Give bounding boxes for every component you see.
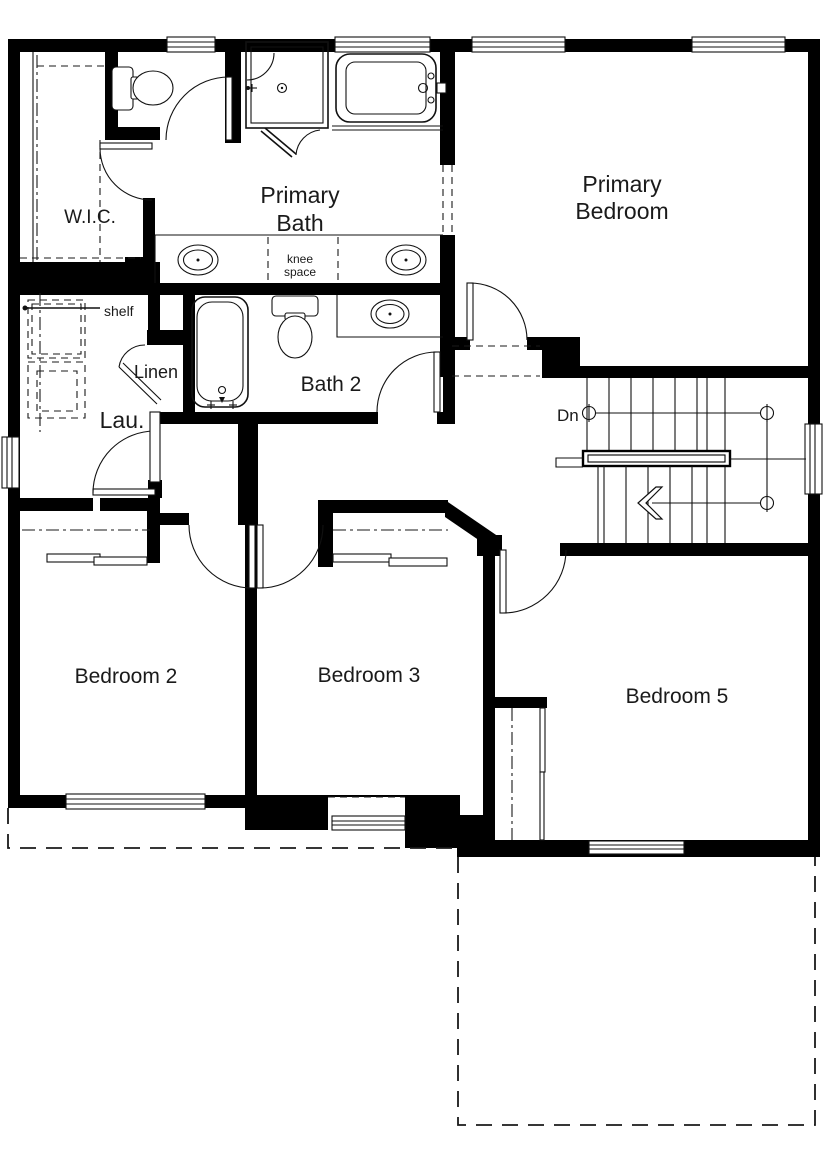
door-laundry <box>93 431 155 495</box>
room-label-wic: W.I.C. <box>64 207 116 228</box>
bedroom2-closet <box>22 530 150 565</box>
stair-treads-upper <box>587 378 697 451</box>
room-label-laundry: Lau. <box>100 407 145 433</box>
room-label-primary-bath-2: Bath <box>276 210 323 236</box>
room-label-primary-bedroom-2: Bedroom <box>575 198 668 224</box>
wall-openings <box>328 165 457 830</box>
room-label-bedroom5: Bedroom 5 <box>626 685 729 708</box>
window <box>335 37 430 52</box>
door-wic <box>100 143 152 200</box>
floor-plan-page: W.I.C. Primary Bath knee space Primary B… <box>0 0 840 1153</box>
bathtub2-icon <box>192 297 248 409</box>
window <box>692 37 785 52</box>
room-label-bath2: Bath 2 <box>301 373 362 396</box>
window <box>2 437 19 488</box>
windows <box>2 37 822 854</box>
door-bath2 <box>377 352 440 412</box>
laundry-opening-frame <box>150 412 160 482</box>
window <box>167 37 215 52</box>
window <box>589 841 684 854</box>
label-knee-space-2: space <box>284 265 316 279</box>
room-label-primary-bath-1: Primary <box>260 182 340 208</box>
door-bedroom5 <box>500 550 566 613</box>
room-label-primary-bedroom-1: Primary <box>582 171 662 197</box>
stair-head-soffit <box>452 346 540 376</box>
window <box>332 816 405 830</box>
door-shower <box>261 128 320 157</box>
label-knee-space-1: knee <box>287 252 313 266</box>
floor-plan: W.I.C. Primary Bath knee space Primary B… <box>0 0 840 1153</box>
window <box>472 37 565 52</box>
toilet2-icon <box>272 296 318 358</box>
closet-details <box>20 52 545 840</box>
labels: W.I.C. Primary Bath knee space Primary B… <box>64 171 728 708</box>
toilet-icon <box>112 67 173 110</box>
bathtub-icon <box>332 54 446 130</box>
window <box>805 424 822 494</box>
sink-icon <box>386 245 426 275</box>
sink-icon <box>178 245 218 275</box>
label-shelf: shelf <box>104 303 134 319</box>
vanity-bath2 <box>337 295 443 337</box>
primary-bath-opening <box>440 165 457 235</box>
door-bedroom3 <box>257 525 323 588</box>
bedroom3-closet <box>333 530 448 566</box>
room-label-bedroom3: Bedroom 3 <box>318 664 421 687</box>
stair-handrail <box>556 451 730 467</box>
window <box>66 794 205 809</box>
door-toilet-room <box>166 77 232 140</box>
label-stairs-down: Dn <box>557 406 579 425</box>
room-label-linen: Linen <box>134 362 178 382</box>
walls <box>8 39 820 857</box>
door-primary-bedroom <box>467 283 527 340</box>
sink-icon <box>371 300 409 328</box>
laundry-shelves <box>23 293 101 432</box>
shower-icon <box>246 42 328 128</box>
bedroom5-closet <box>512 708 545 840</box>
room-label-bedroom2: Bedroom 2 <box>75 665 178 688</box>
